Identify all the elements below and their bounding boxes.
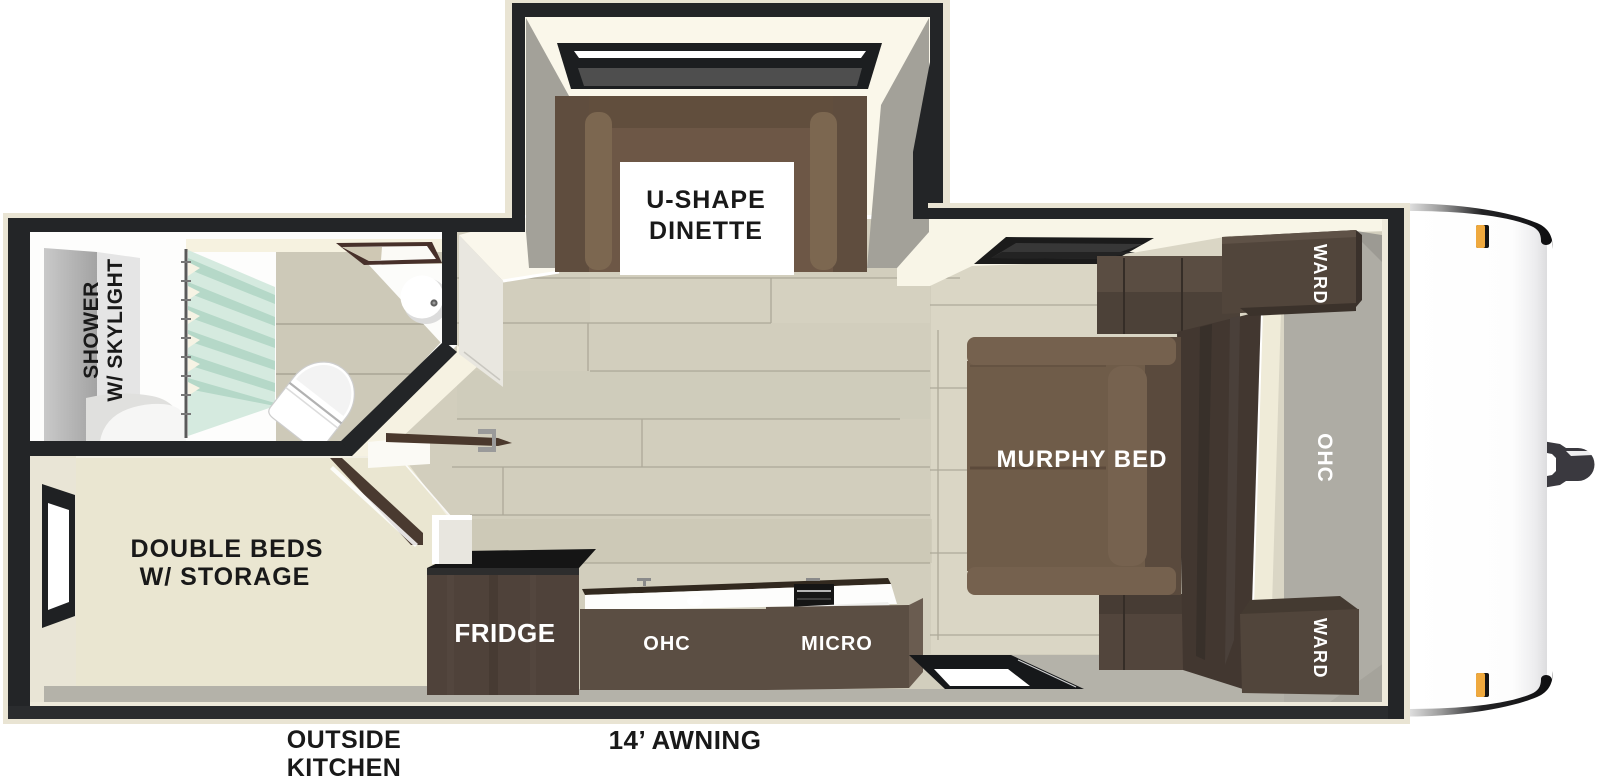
svg-text:OHC: OHC xyxy=(1313,433,1336,483)
svg-text:FRIDGE: FRIDGE xyxy=(454,618,555,648)
svg-text:W/ SKYLIGHT: W/ SKYLIGHT xyxy=(104,258,127,401)
svg-text:DOUBLE BEDS: DOUBLE BEDS xyxy=(131,535,324,563)
svg-text:W/ STORAGE: W/ STORAGE xyxy=(140,563,311,591)
svg-text:DINETTE: DINETTE xyxy=(649,217,763,245)
svg-text:U-SHAPE: U-SHAPE xyxy=(646,186,766,214)
svg-text:MURPHY BED: MURPHY BED xyxy=(997,446,1168,473)
svg-text:OUTSIDE: OUTSIDE xyxy=(287,726,402,754)
svg-text:OHC: OHC xyxy=(643,633,690,655)
svg-text:14’ AWNING: 14’ AWNING xyxy=(609,725,762,755)
svg-text:WARD: WARD xyxy=(1310,618,1330,679)
svg-text:MICRO: MICRO xyxy=(801,633,873,655)
svg-text:WARD: WARD xyxy=(1310,244,1330,305)
svg-text:KITCHEN: KITCHEN xyxy=(287,754,402,779)
svg-text:SHOWER: SHOWER xyxy=(80,281,103,379)
